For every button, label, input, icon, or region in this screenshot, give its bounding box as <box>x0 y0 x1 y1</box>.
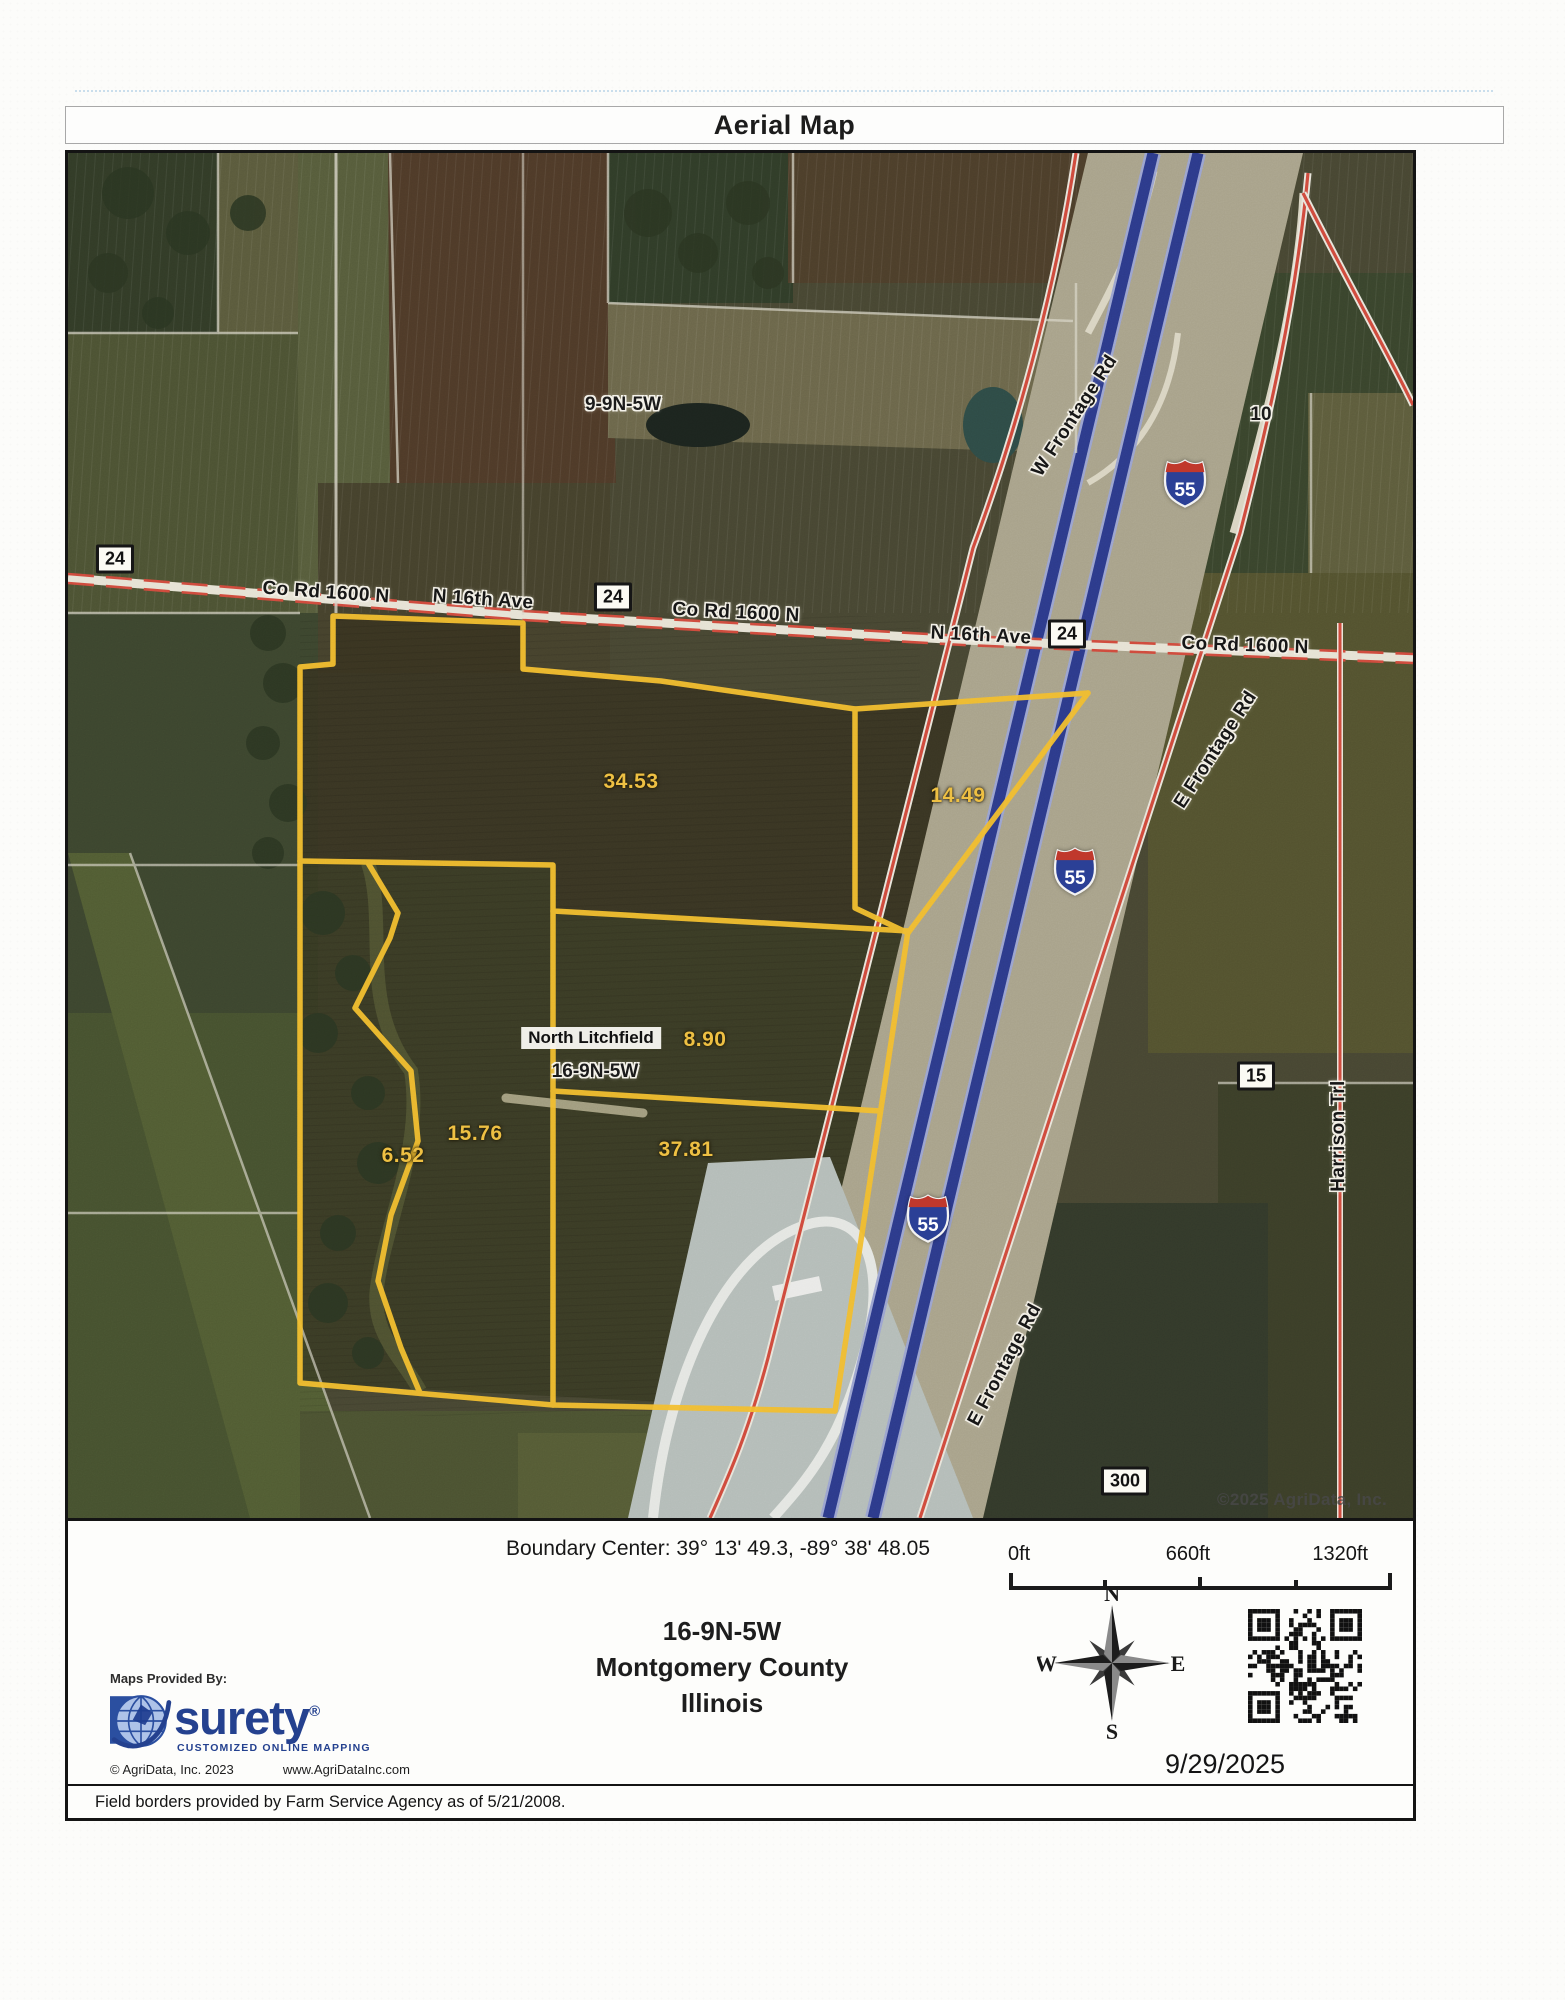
globe-icon <box>110 1690 172 1752</box>
compass-south-label: S <box>1106 1719 1118 1743</box>
road-label: E Frontage Rd <box>1170 687 1262 812</box>
scale-label-1320ft: 1320ft <box>1286 1543 1368 1566</box>
route-shield: 300 <box>1101 1467 1149 1496</box>
map-annotation: 9-9N-5W <box>585 394 661 416</box>
svg-text:55: 55 <box>1064 868 1086 889</box>
svg-text:55: 55 <box>917 1215 939 1236</box>
scale-bar: 0ft 660ft 1320ft <box>68 1521 1413 1611</box>
compass-east-label: E <box>1171 1651 1186 1676</box>
map-date: 9/29/2025 <box>1120 1749 1330 1780</box>
road-label: N 16th Ave <box>930 622 1032 649</box>
route-shield: 24 <box>594 583 632 612</box>
road-label: E Frontage Rd <box>964 1300 1047 1430</box>
imagery-credit: ©2025 AgriData, Inc. <box>1217 1490 1387 1510</box>
map-footer: Boundary Center: 39° 13' 49.3, -89° 38' … <box>68 1521 1413 1818</box>
compass-north-label: N <box>1104 1583 1120 1606</box>
acreage-label: 14.49 <box>930 784 985 808</box>
road-label: Co Rd 1600 N <box>1181 633 1309 659</box>
compass-rose: N E S W <box>1037 1583 1187 1743</box>
scanned-page: Aerial Map <box>0 0 1565 2000</box>
acreage-label: 34.53 <box>603 770 658 794</box>
brand-wordmark: surety® <box>174 1690 371 1740</box>
scan-artifact <box>75 90 1493 92</box>
map-report-frame: 9-9N-5WCo Rd 1600 N24N 16th Ave24Co Rd 1… <box>65 150 1416 1821</box>
page-title: Aerial Map <box>714 110 856 141</box>
provider-block: Maps Provided By: surety® CUSTOMIZED ONL… <box>110 1671 410 1777</box>
aerial-map: 9-9N-5WCo Rd 1600 N24N 16th Ave24Co Rd 1… <box>68 153 1413 1521</box>
interstate-shield: 55 <box>1052 846 1098 896</box>
surety-logo: surety® CUSTOMIZED ONLINE MAPPING <box>110 1690 410 1754</box>
route-shield: 15 <box>1237 1062 1275 1091</box>
scale-label-660ft: 660ft <box>1128 1543 1248 1566</box>
acreage-label: 37.81 <box>658 1138 713 1162</box>
compass-cardinal-points <box>1054 1605 1170 1721</box>
road-label: Co Rd 1600 N <box>672 599 800 628</box>
provider-heading: Maps Provided By: <box>110 1671 410 1686</box>
acreage-label: 6.52 <box>382 1144 425 1168</box>
route-shield: 24 <box>1048 620 1086 649</box>
road-label: W Frontage Rd <box>1028 351 1123 481</box>
map-annotation: 16-9N-5W <box>552 1061 639 1083</box>
interstate-shield: 55 <box>1162 458 1208 508</box>
interstate-shield: 55 <box>905 1193 951 1243</box>
disclaimer-text: Field borders provided by Farm Service A… <box>95 1793 566 1812</box>
road-label: Harrison Trl <box>1328 1080 1350 1191</box>
scale-label-0ft: 0ft <box>1008 1543 1030 1566</box>
map-annotation: 10 <box>1250 404 1271 426</box>
disclaimer-bar: Field borders provided by Farm Service A… <box>68 1784 1413 1818</box>
town-label: North Litchfield <box>521 1027 661 1049</box>
map-labels: 9-9N-5WCo Rd 1600 N24N 16th Ave24Co Rd 1… <box>68 153 1413 1518</box>
provider-website: www.AgriDataInc.com <box>283 1762 410 1777</box>
title-bar: Aerial Map <box>65 106 1504 144</box>
road-label: N 16th Ave <box>432 586 534 615</box>
route-shield: 24 <box>96 545 134 574</box>
road-label: Co Rd 1600 N <box>262 578 391 609</box>
svg-text:55: 55 <box>1174 480 1196 501</box>
registered-mark: ® <box>309 1703 320 1720</box>
brand-tagline: CUSTOMIZED ONLINE MAPPING <box>177 1742 371 1754</box>
acreage-label: 8.90 <box>684 1028 727 1052</box>
compass-west-label: W <box>1037 1651 1057 1676</box>
qr-code <box>1248 1609 1362 1723</box>
acreage-label: 15.76 <box>447 1122 502 1146</box>
provider-copyright: © AgriData, Inc. 2023 <box>110 1762 234 1777</box>
